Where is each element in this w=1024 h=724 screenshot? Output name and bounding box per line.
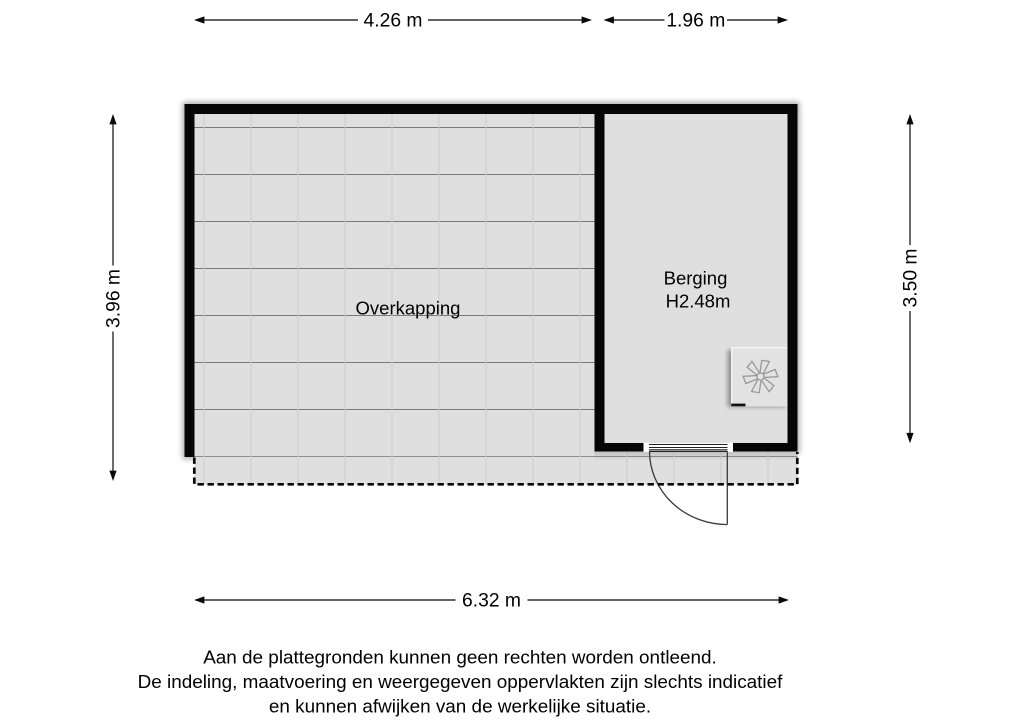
- svg-text:Aan de plattegronden kunnen ge: Aan de plattegronden kunnen geen rechten…: [203, 648, 717, 669]
- svg-text:De indeling, maatvoering en we: De indeling, maatvoering en weergegeven …: [138, 672, 784, 693]
- svg-text:H2.48m: H2.48m: [666, 291, 731, 312]
- svg-text:6.32 m: 6.32 m: [462, 591, 521, 612]
- svg-text:Overkapping: Overkapping: [356, 298, 461, 319]
- svg-text:4.26 m: 4.26 m: [364, 11, 423, 32]
- svg-text:1.96 m: 1.96 m: [666, 11, 725, 32]
- svg-text:3.50 m: 3.50 m: [901, 249, 922, 308]
- svg-text:3.96 m: 3.96 m: [104, 269, 125, 328]
- svg-text:en kunnen afwijken van de werk: en kunnen afwijken van de werkelijke sit…: [269, 697, 651, 718]
- svg-text:Berging: Berging: [664, 268, 728, 289]
